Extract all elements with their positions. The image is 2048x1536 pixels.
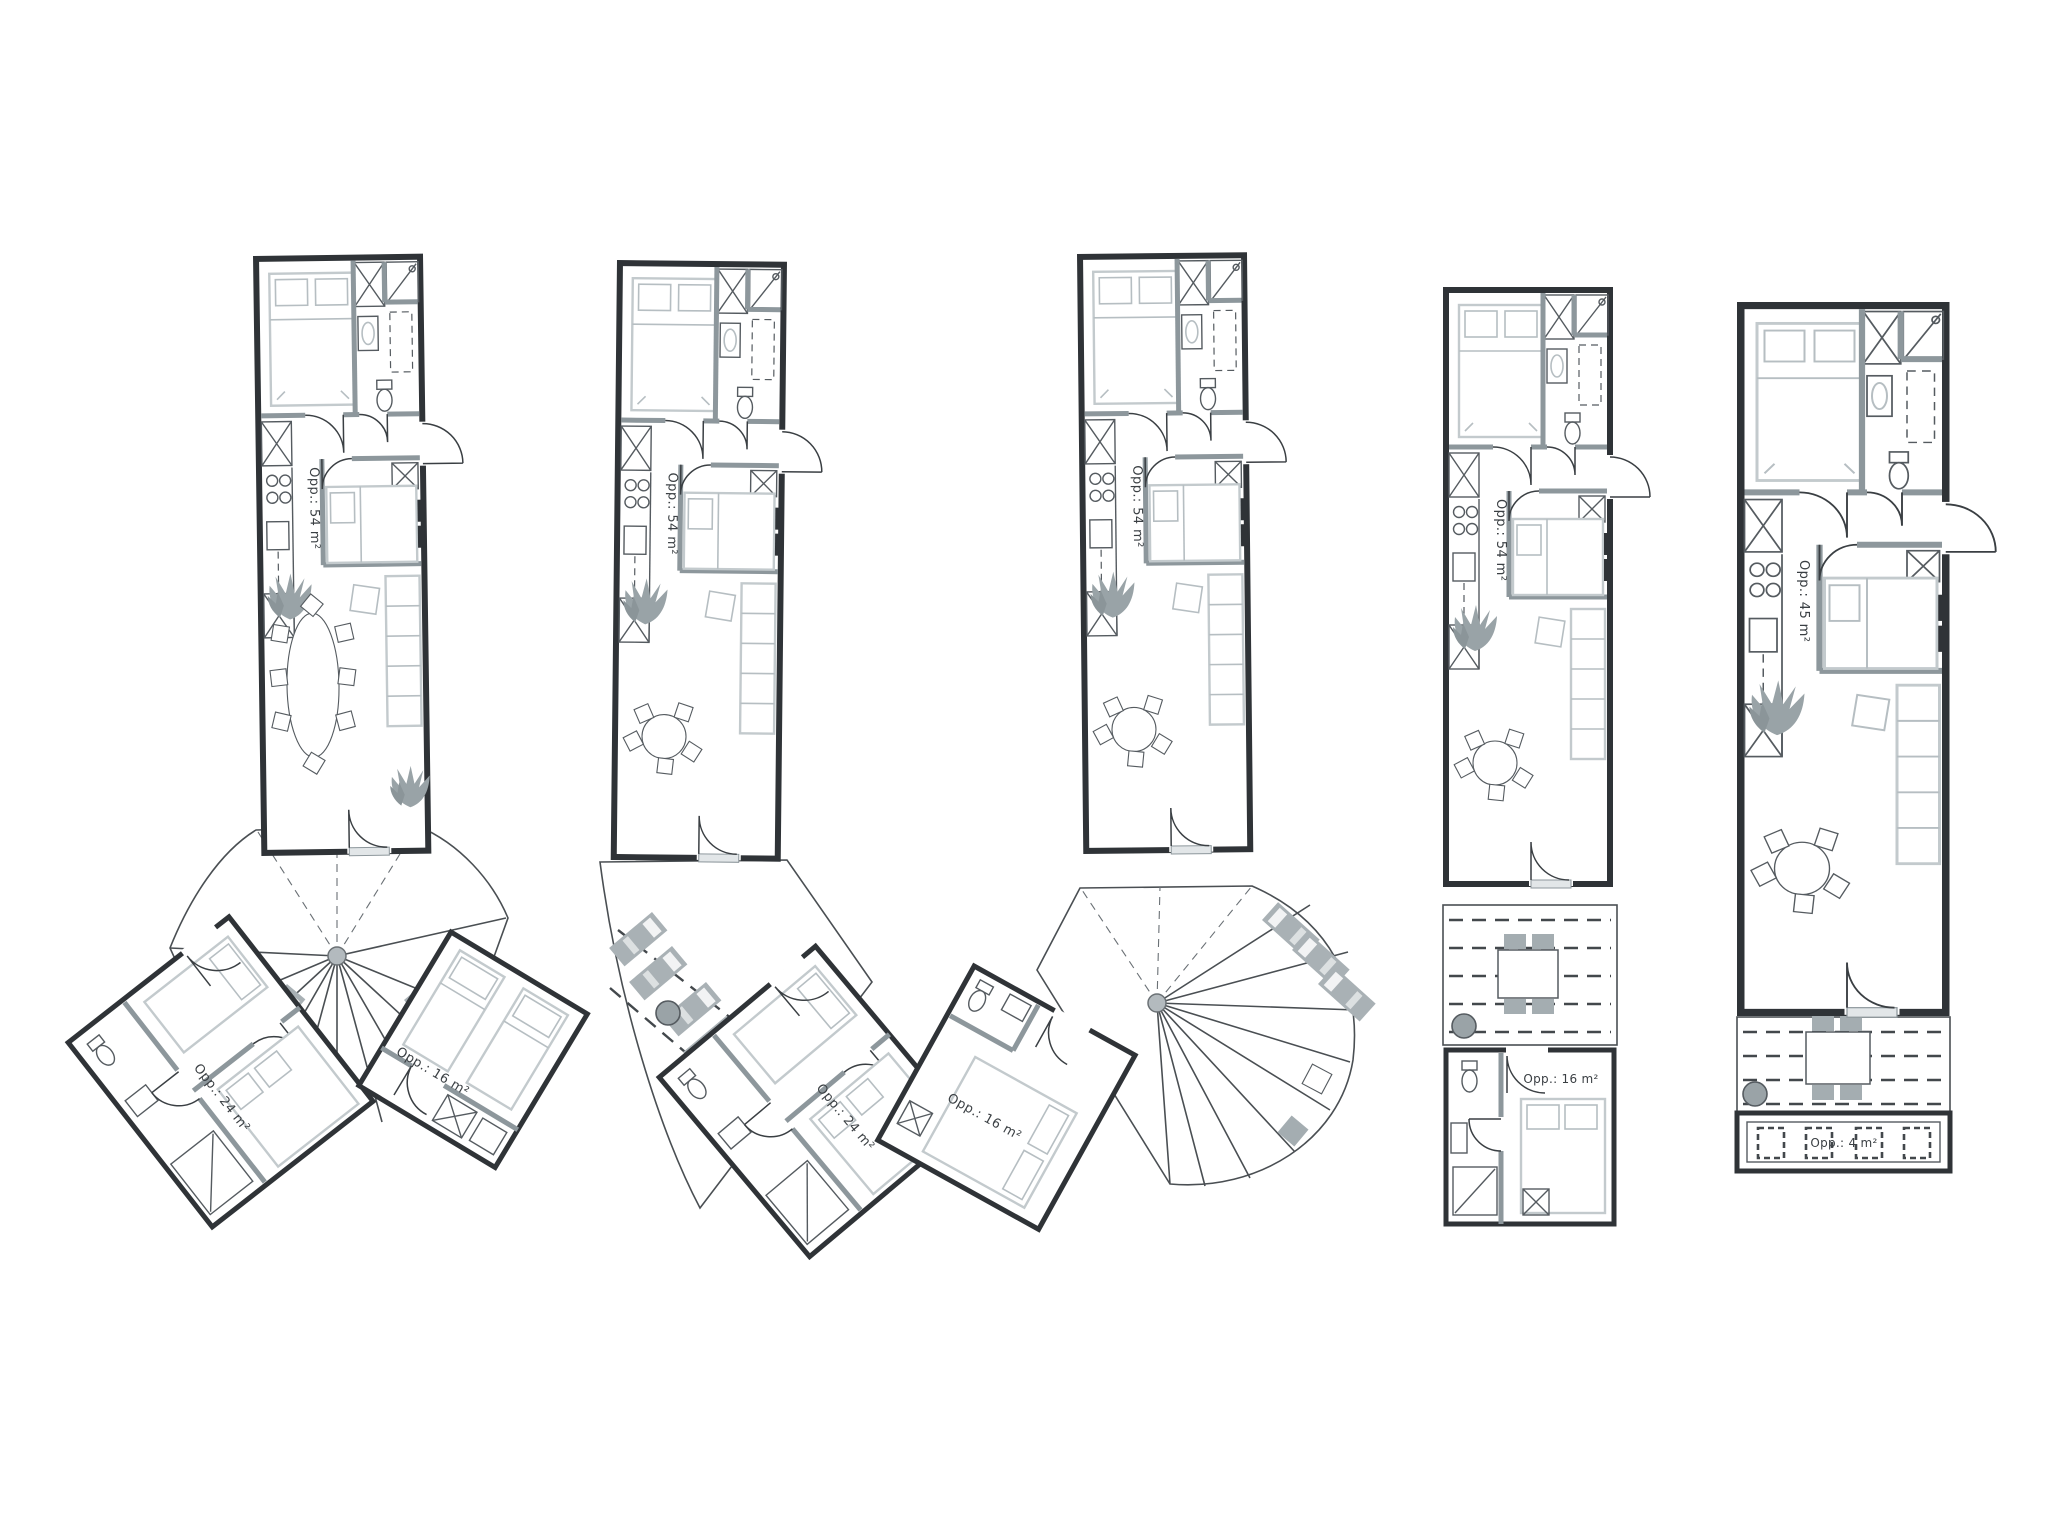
- hot-tub: [1743, 1082, 1767, 1106]
- area-label-main: Opp.: 54 m²: [1493, 499, 1508, 581]
- plan-5-main: Opp.: 45 m²: [1741, 306, 1996, 1018]
- area-label-main: Opp.: 45 m²: [1796, 560, 1811, 642]
- deck-hub: [1148, 994, 1166, 1012]
- deck-stool: [1278, 1116, 1309, 1147]
- area-label-storage: Opp.: 4 m²: [1810, 1136, 1877, 1150]
- chair: [1840, 1085, 1862, 1100]
- pillow: [1565, 1105, 1597, 1129]
- hot-tub: [1452, 1014, 1476, 1038]
- plan-4-deck: [1443, 905, 1617, 1045]
- plan-5-storage: Opp.: 4 m²: [1737, 1113, 1950, 1171]
- chair: [1812, 1016, 1834, 1031]
- picnic-table: [1498, 950, 1558, 998]
- storage-bin: [1758, 1128, 1784, 1158]
- drawing-sheet: Opp.: 54 m² Opp.: 24 m² Opp.: 16 m² Opp.…: [0, 0, 2048, 1536]
- plan-4: Opp.: 54 m² Opp.: 16 m²: [1443, 290, 1650, 1224]
- plan-4-annex: Opp.: 16 m²: [1446, 1047, 1614, 1224]
- chair: [1840, 1016, 1862, 1031]
- plan-3-room: Opp.: 16 m²: [878, 963, 1137, 1229]
- deck-stool: [1302, 1064, 1332, 1094]
- picnic-table: [1806, 1032, 1870, 1084]
- floorplan-sheet: Opp.: 54 m² Opp.: 24 m² Opp.: 16 m² Opp.…: [0, 0, 2048, 1536]
- chair: [1812, 1085, 1834, 1100]
- storage-bin: [1904, 1128, 1930, 1158]
- plan-3-main: Opp.: 54 m²: [1080, 255, 1290, 855]
- plan-5-deck: [1737, 1016, 1950, 1113]
- plan-3: Opp.: 54 m² Opp.: 16 m²: [878, 255, 1376, 1230]
- plan-2-main: Opp.: 54 m²: [614, 263, 824, 863]
- deck-spokes: [1082, 886, 1356, 1186]
- area-label-main: Opp.: 54 m²: [306, 467, 322, 550]
- area-label-main: Opp.: 54 m²: [664, 473, 680, 555]
- plan-4-main: Opp.: 54 m²: [1446, 290, 1650, 888]
- hot-tub: [656, 1001, 680, 1025]
- pillow: [1527, 1105, 1559, 1129]
- chair: [1504, 999, 1526, 1014]
- plan-1: Opp.: 54 m² Opp.: 24 m² Opp.: 16 m²: [66, 256, 587, 1227]
- plan-1-room-left: Opp.: 24 m²: [66, 915, 373, 1227]
- area-label-annex: Opp.: 16 m²: [1523, 1072, 1598, 1086]
- chair: [1504, 934, 1526, 949]
- plan-5: Opp.: 45 m² Opp.: 4 m²: [1737, 306, 1996, 1171]
- area-label-main: Opp.: 54 m²: [1129, 465, 1145, 547]
- plan-1-main: Opp.: 54 m²: [256, 256, 468, 857]
- chair: [1532, 999, 1554, 1014]
- chair: [1532, 934, 1554, 949]
- plan-1-room-right: Opp.: 16 m²: [359, 932, 587, 1167]
